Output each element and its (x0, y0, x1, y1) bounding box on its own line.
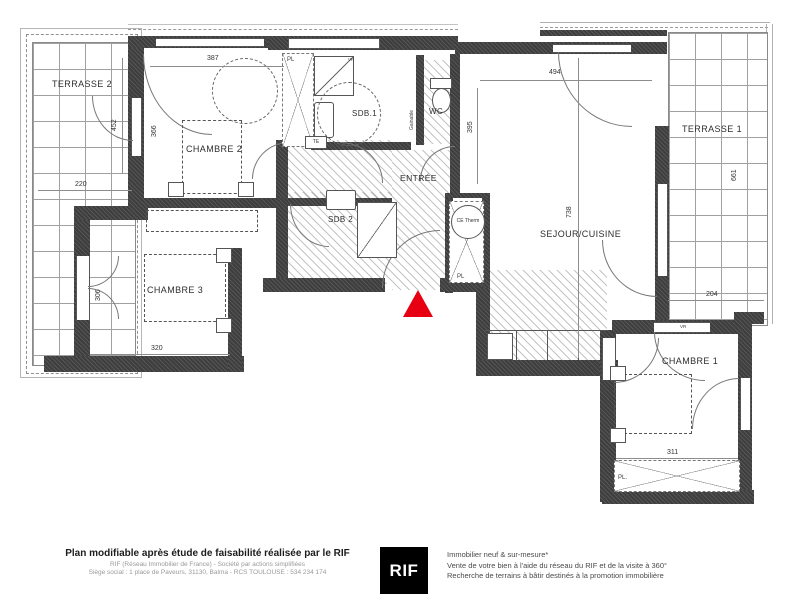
wall (416, 55, 424, 145)
dimension-line (150, 66, 284, 67)
nightstand-icon (216, 248, 232, 263)
dimension-label: 395 (467, 121, 474, 133)
shower-icon (357, 202, 397, 258)
window (156, 38, 264, 47)
closet (282, 53, 314, 147)
floor-plan: CE Therm TE TERRASSE 2 CHAMBRE 2 SDB.1 W… (0, 0, 800, 545)
door-arc (692, 378, 739, 429)
dimension-line (90, 354, 230, 355)
room-label-sdb2: SDB 2 (328, 215, 353, 224)
roof-line (128, 24, 458, 25)
dimension-label: 661 (731, 169, 738, 181)
gainable-label: Gainable (409, 110, 415, 130)
dimension-line (668, 300, 764, 301)
nightstand-icon (610, 366, 626, 381)
footer-right-line1: Immobilier neuf & sur-mesure* (447, 550, 667, 561)
dimension-line (122, 58, 123, 174)
closet (614, 460, 740, 492)
closet-label: PL (287, 57, 294, 63)
water-heater-icon: CE Therm (451, 205, 485, 239)
shutter-label: VR (348, 57, 354, 62)
wall (540, 30, 667, 36)
terrace1-tiles (668, 32, 768, 326)
shutter-box (288, 38, 380, 49)
bed-icon (614, 374, 692, 434)
kitchen-counter-line (547, 330, 548, 360)
window (657, 184, 668, 276)
sink-icon (326, 190, 356, 210)
dimension-line (616, 458, 738, 459)
bed-icon (182, 120, 242, 194)
wardrobe-icon (146, 210, 258, 232)
dimension-line (578, 58, 579, 358)
kitchen-counter-line (516, 330, 517, 360)
room-label-chambre2: CHAMBRE 2 (186, 144, 242, 154)
wall (228, 248, 242, 372)
wall (445, 193, 490, 198)
dimension-label: 220 (75, 181, 87, 188)
room-label-sejour: SEJOUR/CUISINE (540, 229, 621, 239)
footer-company-line: RIF (Réseau Immobilier de France) - Soci… (50, 561, 365, 568)
dimension-line (38, 190, 132, 191)
wall (476, 360, 618, 376)
room-label-sdb1: SDB.1 (352, 109, 377, 118)
room-label-chambre3: CHAMBRE 3 (147, 285, 203, 295)
dimension-label: 320 (151, 345, 163, 352)
wall (263, 278, 385, 292)
nightstand-icon (238, 182, 254, 197)
te-box: TE (305, 136, 327, 149)
kitchen-appliance-icon (487, 333, 513, 360)
dimension-line (477, 88, 478, 184)
terrace1-dashed-line (540, 27, 768, 28)
shutter-label: VR (680, 324, 686, 329)
wall (276, 198, 288, 290)
dimension-label: 738 (566, 206, 573, 218)
roof-dashed-line (128, 29, 458, 30)
footer-right-line2: Vente de votre bien à l'aide du réseau d… (447, 561, 667, 572)
room-label-wc: WC (429, 107, 443, 116)
dimension-label: 494 (549, 69, 561, 76)
room-label-terrasse1: TERRASSE 1 (682, 124, 742, 134)
dimension-label: 311 (667, 449, 678, 456)
dimension-label: 387 (207, 55, 219, 62)
rif-logo: RIF (380, 547, 428, 594)
dimension-label: 452 (111, 119, 118, 131)
turning-circle (212, 58, 278, 124)
wall (734, 312, 764, 324)
footer: Plan modifiable après étude de faisabili… (0, 545, 800, 600)
footer-right-line3: Recherche de terrains à bâtir destinés à… (447, 571, 667, 582)
dimension-label: 204 (706, 291, 718, 298)
nightstand-icon (610, 428, 626, 443)
door-arc (252, 142, 289, 179)
wall (74, 206, 148, 220)
dimension-label: 306 (95, 289, 102, 301)
nightstand-icon (168, 182, 184, 197)
room-label-chambre1: CHAMBRE 1 (662, 356, 718, 366)
room-label-terrasse2: TERRASSE 2 (52, 79, 112, 89)
wall (44, 356, 244, 372)
closet-label: PL (457, 274, 464, 280)
footer-address-line: Siège social : 1 place de Paveurs, 31130… (50, 569, 365, 576)
kitchen-counter-line (485, 330, 607, 331)
window (740, 378, 751, 430)
dimension-label: 366 (151, 125, 158, 137)
room-label-entree: ENTRÉE (400, 173, 437, 183)
footer-left-block: Plan modifiable après étude de faisabili… (50, 548, 365, 576)
closet-label: PL. (618, 475, 627, 481)
footer-right-block: Immobilier neuf & sur-mesure* Vente de v… (447, 550, 667, 582)
nightstand-icon (216, 318, 232, 333)
dimension-line (480, 80, 652, 81)
door-arc (558, 52, 632, 127)
terrace1-outer-line (540, 22, 770, 23)
door-arc (602, 240, 657, 297)
wall (602, 490, 754, 504)
footer-title: Plan modifiable après étude de faisabili… (50, 548, 365, 559)
entrance-marker (403, 290, 433, 317)
wall (143, 198, 288, 208)
